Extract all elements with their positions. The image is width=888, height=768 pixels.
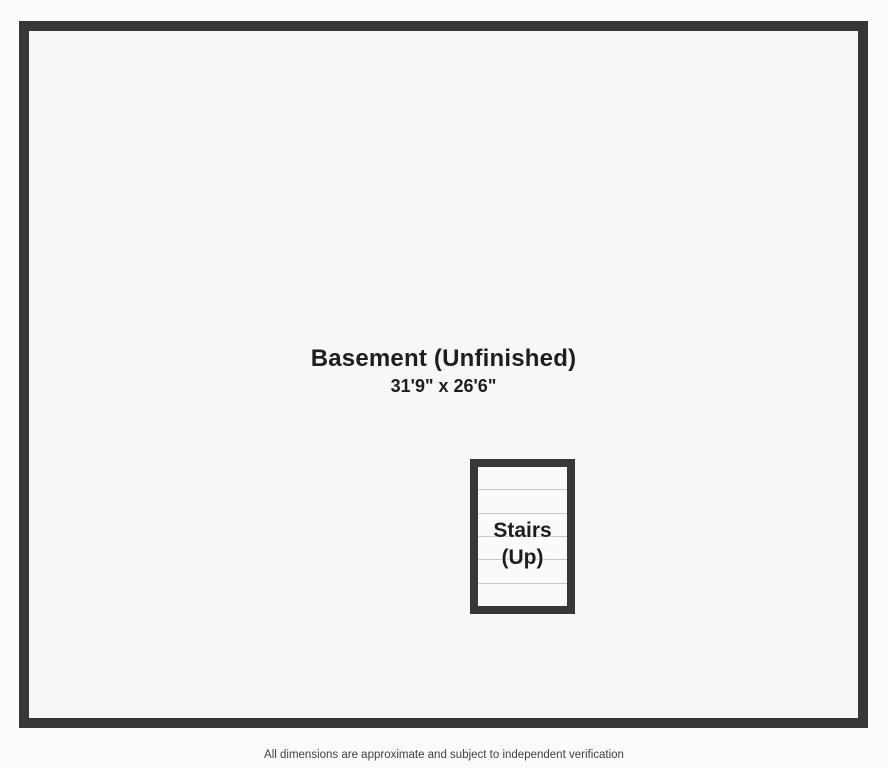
footer-disclaimer: All dimensions are approximate and subje… (0, 748, 888, 762)
stairs-box: Stairs (Up) (470, 459, 575, 614)
stairs-label: Stairs (Up) (478, 474, 567, 613)
stairs-label-line2: (Up) (502, 544, 544, 571)
room-dimensions: 31'9" x 26'6" (29, 374, 858, 398)
room-name: Basement (Unfinished) (29, 345, 858, 373)
stairs-label-line1: Stairs (493, 517, 551, 544)
floorplan-room-outline: Basement (Unfinished) 31'9" x 26'6" Stai… (19, 21, 868, 728)
room-label: Basement (Unfinished) 31'9" x 26'6" (29, 345, 858, 398)
